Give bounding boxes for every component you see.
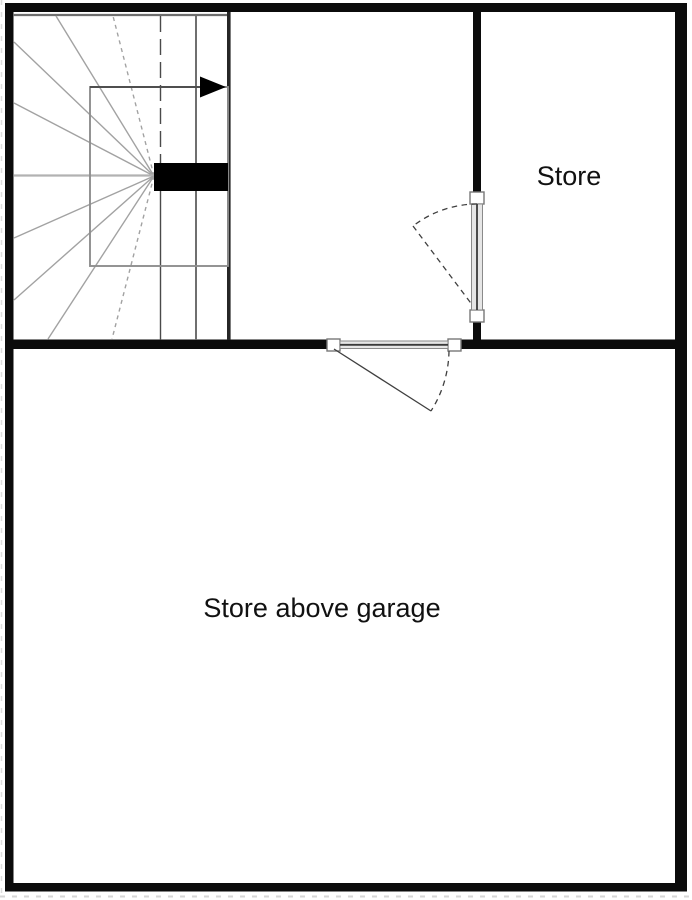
- svg-text:Store above garage: Store above garage: [203, 593, 440, 623]
- svg-text:Store: Store: [537, 161, 602, 191]
